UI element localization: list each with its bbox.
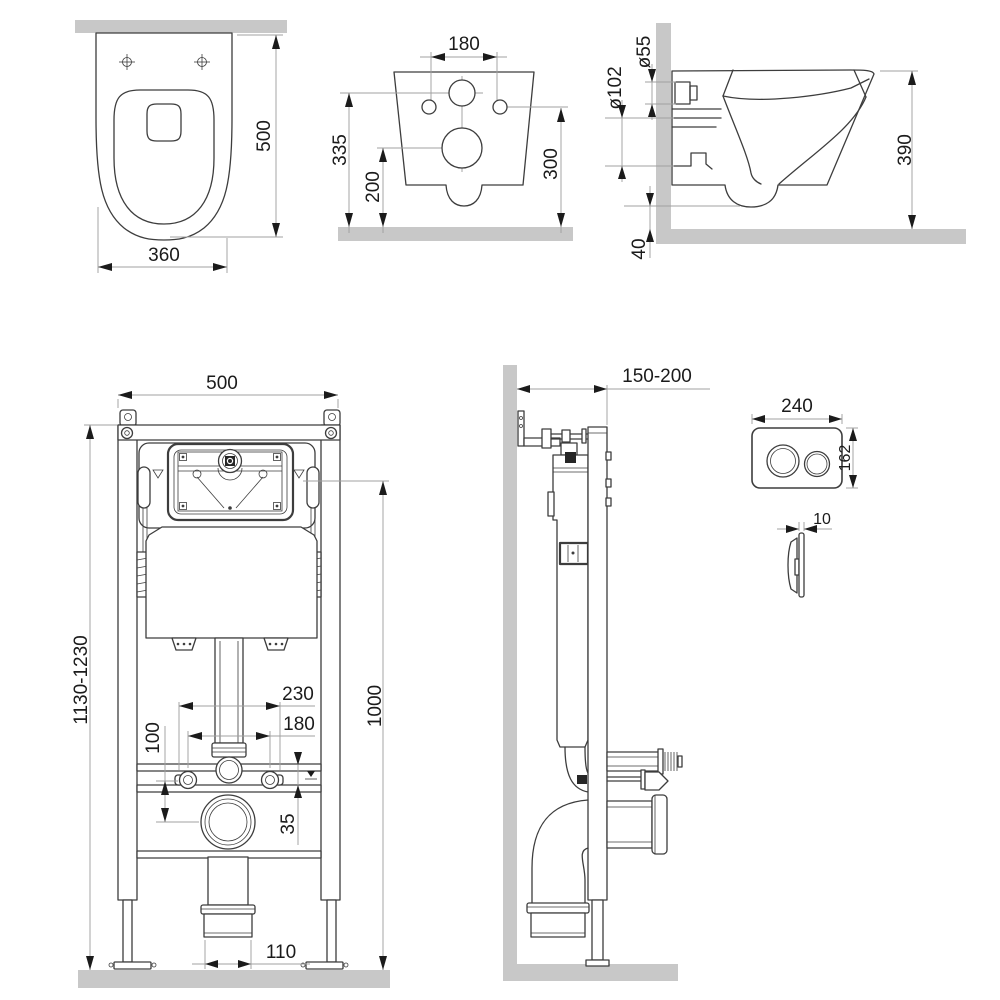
dim-label-drain-height: 200 — [363, 171, 384, 203]
drain-elbow — [527, 800, 589, 937]
wall-section — [503, 365, 517, 981]
dim-floor-gap: 40 — [624, 186, 740, 260]
dim-inlet-height: 335 — [330, 93, 353, 233]
floor-section — [78, 970, 390, 988]
mounting-hole-marks — [119, 54, 210, 70]
dim-label-inlet-height: 335 — [330, 134, 351, 166]
dim-drain-height: 200 — [363, 148, 387, 233]
bowl-side-outline — [672, 70, 874, 207]
flush-pipe — [212, 638, 246, 757]
dim-bolt-spacing: 180 — [420, 34, 507, 61]
dim-plate-thickness: 10 — [777, 511, 832, 533]
dim-frame-width: 500 — [118, 373, 338, 408]
water-inlet-hole — [449, 80, 475, 106]
cistern-profile — [548, 443, 588, 747]
threaded-rod-anchor — [607, 770, 668, 790]
frame-member — [588, 427, 607, 900]
access-window — [168, 444, 293, 520]
frame-hangers — [120, 410, 340, 426]
dim-plate-width: 240 — [752, 396, 842, 424]
dim-label-drain-diameter: ø102 — [605, 66, 626, 109]
frame-front-view: 500 1130-1230 1000 230 180 — [71, 373, 390, 988]
bowl-outline — [96, 33, 232, 240]
installation-drawing: 500 360 180 335 — [0, 0, 1000, 1000]
frame-rail-left — [118, 425, 137, 900]
member-screws — [606, 452, 611, 506]
bolt-hole-left — [422, 100, 436, 114]
bolt-hole-right — [493, 100, 507, 114]
drain-socket-side — [607, 795, 667, 854]
cistern-tank — [146, 527, 317, 638]
floor-section — [338, 227, 573, 241]
outlet-pipe — [201, 857, 255, 937]
dim-label-outlet-width: 110 — [266, 942, 296, 963]
dim-bowl-height: 390 — [880, 71, 918, 229]
dim-label-frame-height: 1130-1230 — [71, 635, 92, 724]
flush-plate-side — [788, 533, 804, 597]
dim-label-plate-height: 162 — [837, 445, 854, 472]
wall-section — [656, 23, 671, 229]
dim-label-bowl-width: 360 — [148, 245, 180, 266]
toilet-rear-view: 180 335 200 300 — [330, 34, 573, 241]
flush-plate-view: 240 162 10 — [752, 396, 858, 597]
toilet-side-view: ø55 ø102 390 40 — [605, 23, 966, 260]
dim-label-rod-spacing: 230 — [282, 684, 314, 705]
technical-drawing-page: 500 360 180 335 — [0, 0, 1000, 1000]
frame-top-rail — [118, 425, 340, 440]
dim-label-inlet-diameter: ø55 — [634, 36, 655, 69]
dim-label-bowl-height: 390 — [895, 134, 916, 166]
seat-outline — [114, 90, 214, 224]
dim-bolt-spacing: 180 — [188, 714, 315, 768]
dim-bolt-height: 300 — [541, 108, 565, 233]
dim-outlet-width: 110 — [192, 940, 310, 969]
floor-section — [656, 229, 966, 244]
dim-frame-depth: 150-200 — [517, 366, 710, 425]
wall-section — [75, 20, 287, 33]
dim-label-frame-depth: 150-200 — [622, 366, 692, 387]
dim-label-drain-offset: 100 — [143, 722, 164, 754]
dim-label-inlet-offset: 35 — [278, 813, 299, 834]
cable-port — [565, 452, 576, 463]
frame-side-view: 150-200 — [503, 365, 710, 981]
dim-label-plate-width: 240 — [781, 396, 813, 417]
drain-hole — [442, 128, 482, 168]
dim-label-bolt-spacing: 180 — [448, 34, 480, 55]
toilet-top-view: 500 360 — [75, 20, 287, 273]
reference-mark — [307, 771, 315, 777]
dim-label-bolt-spacing: 180 — [283, 714, 315, 735]
wall-bracket — [518, 411, 588, 448]
dim-bowl-depth: 500 — [170, 35, 283, 237]
dim-label-floor-gap: 40 — [629, 238, 650, 259]
dim-label-marking-height: 1000 — [365, 685, 386, 727]
dim-label-bolt-height: 300 — [541, 148, 562, 180]
dim-label-plate-thickness: 10 — [813, 511, 831, 528]
dim-label-bowl-depth: 500 — [254, 120, 275, 152]
dim-label-frame-width: 500 — [206, 373, 238, 394]
bowl-side-details — [672, 70, 869, 184]
frame-rail-right — [321, 425, 340, 900]
dim-frame-height: 1130-1230 — [71, 425, 117, 970]
flush-opening — [147, 104, 181, 141]
